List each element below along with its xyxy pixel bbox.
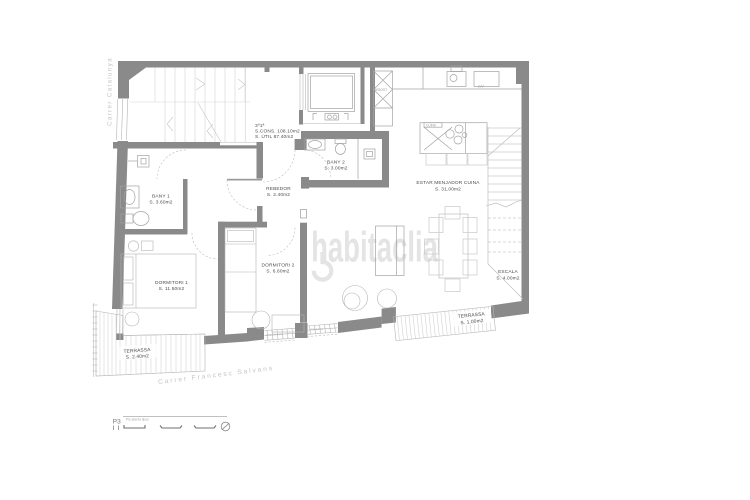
svg-text:S. 31.00m2: S. 31.00m2: [435, 187, 461, 193]
svg-text:LVV: LVV: [478, 85, 485, 89]
svg-text:REBEDOR: REBEDOR: [266, 186, 291, 192]
svg-text:S. 3.00m2: S. 3.00m2: [324, 166, 347, 172]
svg-text:Pis planta tipus: Pis planta tipus: [126, 418, 149, 422]
svg-text:S. 6.60m2: S. 6.60m2: [266, 269, 289, 275]
svg-text:S. ÚTIL 87.40m2: S. ÚTIL 87.40m2: [255, 133, 294, 140]
svg-text:Carrer Catalunya: Carrer Catalunya: [107, 57, 114, 126]
svg-text:CUINA: CUINA: [426, 123, 437, 127]
svg-text:S. 11.50m2: S. 11.50m2: [159, 286, 185, 292]
svg-text:DORMITORI 1: DORMITORI 1: [155, 280, 188, 286]
svg-text:ESCALA: ESCALA: [498, 269, 518, 275]
svg-text:ESTAR MENJADOR CUINA: ESTAR MENJADOR CUINA: [416, 180, 480, 186]
svg-text:BANY 1: BANY 1: [152, 194, 170, 200]
svg-text:DORMITORI 2: DORMITORI 2: [261, 263, 294, 269]
svg-text:S.CONS. 108.10m2: S.CONS. 108.10m2: [255, 129, 300, 135]
svg-text:P3: P3: [113, 419, 122, 426]
svg-text:S. 3.60m2: S. 3.60m2: [149, 200, 172, 206]
svg-text:BANY 2: BANY 2: [327, 160, 345, 166]
svg-text:3º1ª: 3º1ª: [255, 123, 265, 129]
svg-text:S. 4.00m2: S. 4.00m2: [496, 276, 519, 282]
svg-text:S. 2.40m2: S. 2.40m2: [267, 192, 290, 198]
svg-text:REBOST: REBOST: [374, 88, 387, 92]
